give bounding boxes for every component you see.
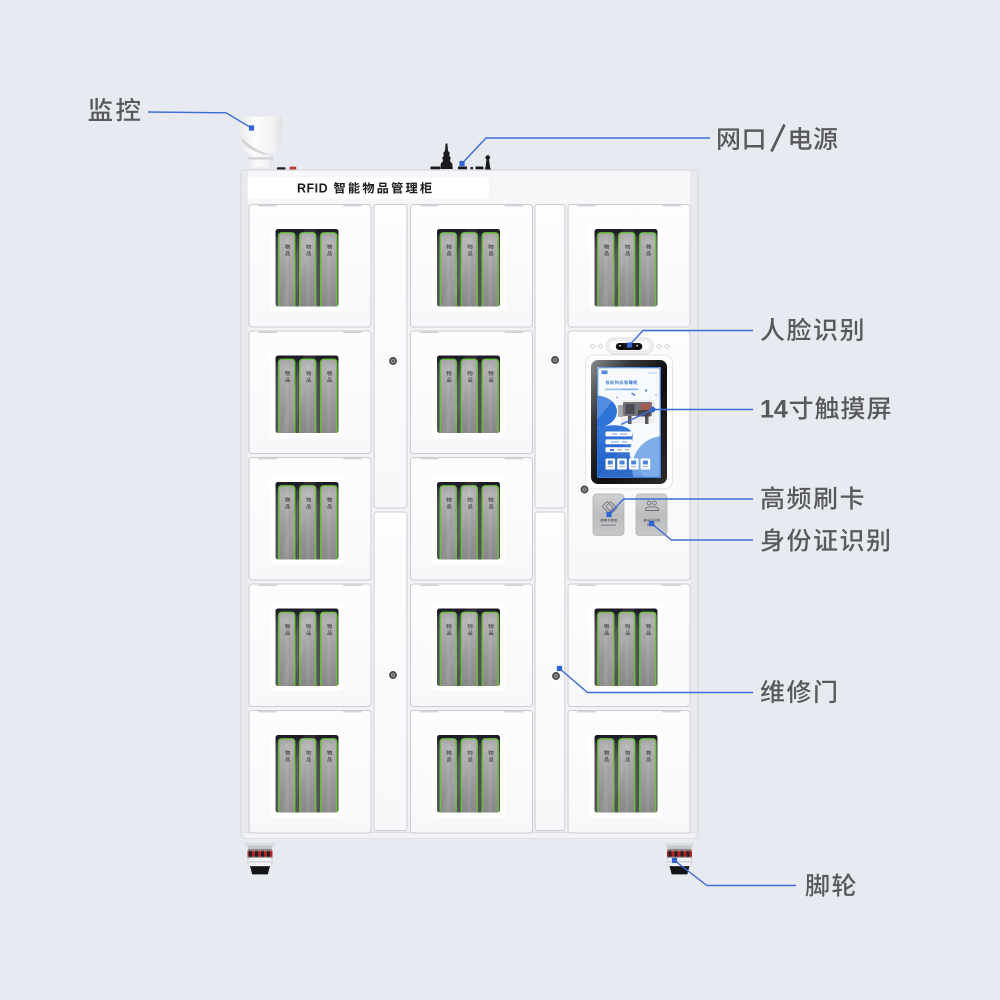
- svg-text:RFID: RFID: [297, 182, 328, 196]
- svg-text:14: 14: [760, 396, 788, 424]
